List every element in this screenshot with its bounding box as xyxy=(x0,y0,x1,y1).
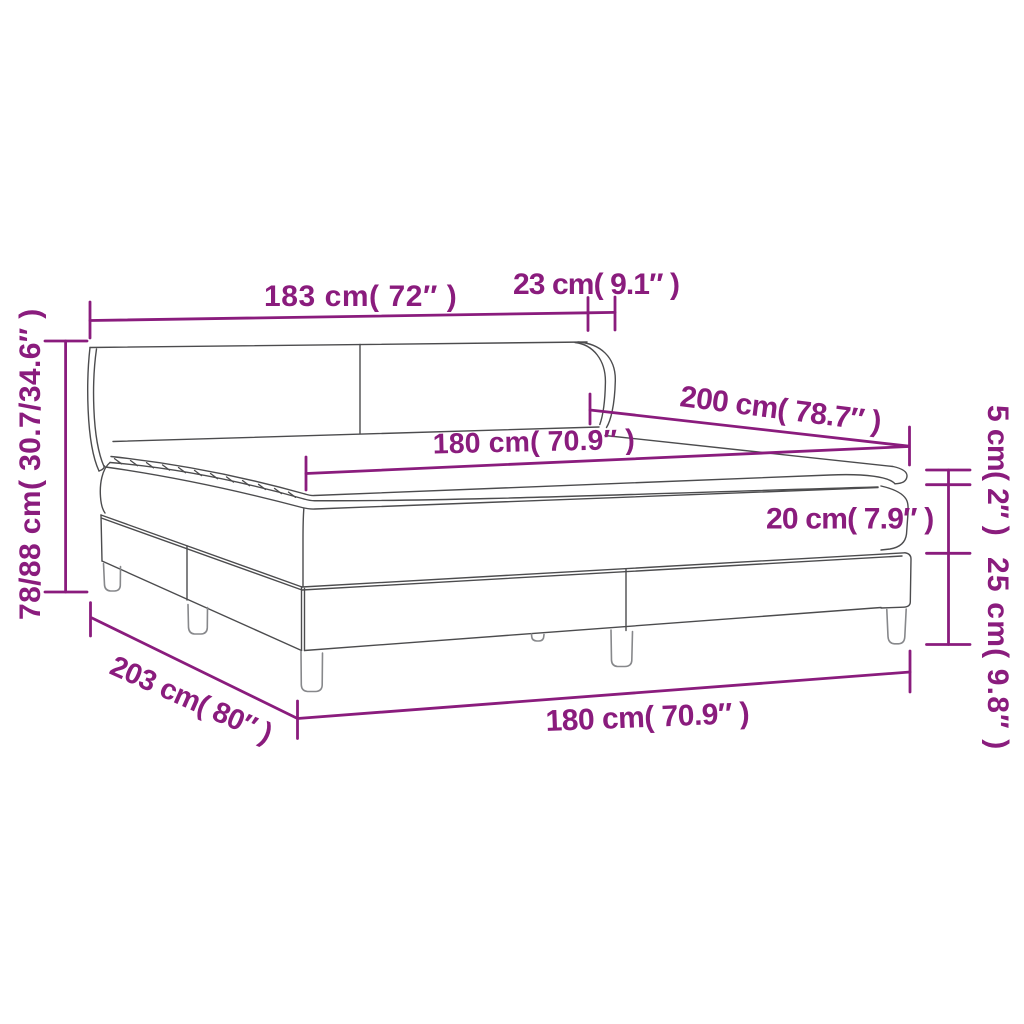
svg-text:183 cm( 72″ ): 183 cm( 72″ ) xyxy=(264,280,457,313)
svg-text:78/88 cm( 30.7/34.6″ ): 78/88 cm( 30.7/34.6″ ) xyxy=(14,308,47,620)
svg-text:5 cm( 2″ ): 5 cm( 2″ ) xyxy=(981,405,1014,535)
svg-text:23 cm( 9.1″ ): 23 cm( 9.1″ ) xyxy=(513,268,679,301)
svg-text:20 cm( 7.9″ ): 20 cm( 7.9″ ) xyxy=(766,503,933,536)
svg-text:25 cm( 9.8″ ): 25 cm( 9.8″ ) xyxy=(981,557,1014,750)
svg-text:180 cm( 70.9″ ): 180 cm( 70.9″ ) xyxy=(432,424,635,461)
